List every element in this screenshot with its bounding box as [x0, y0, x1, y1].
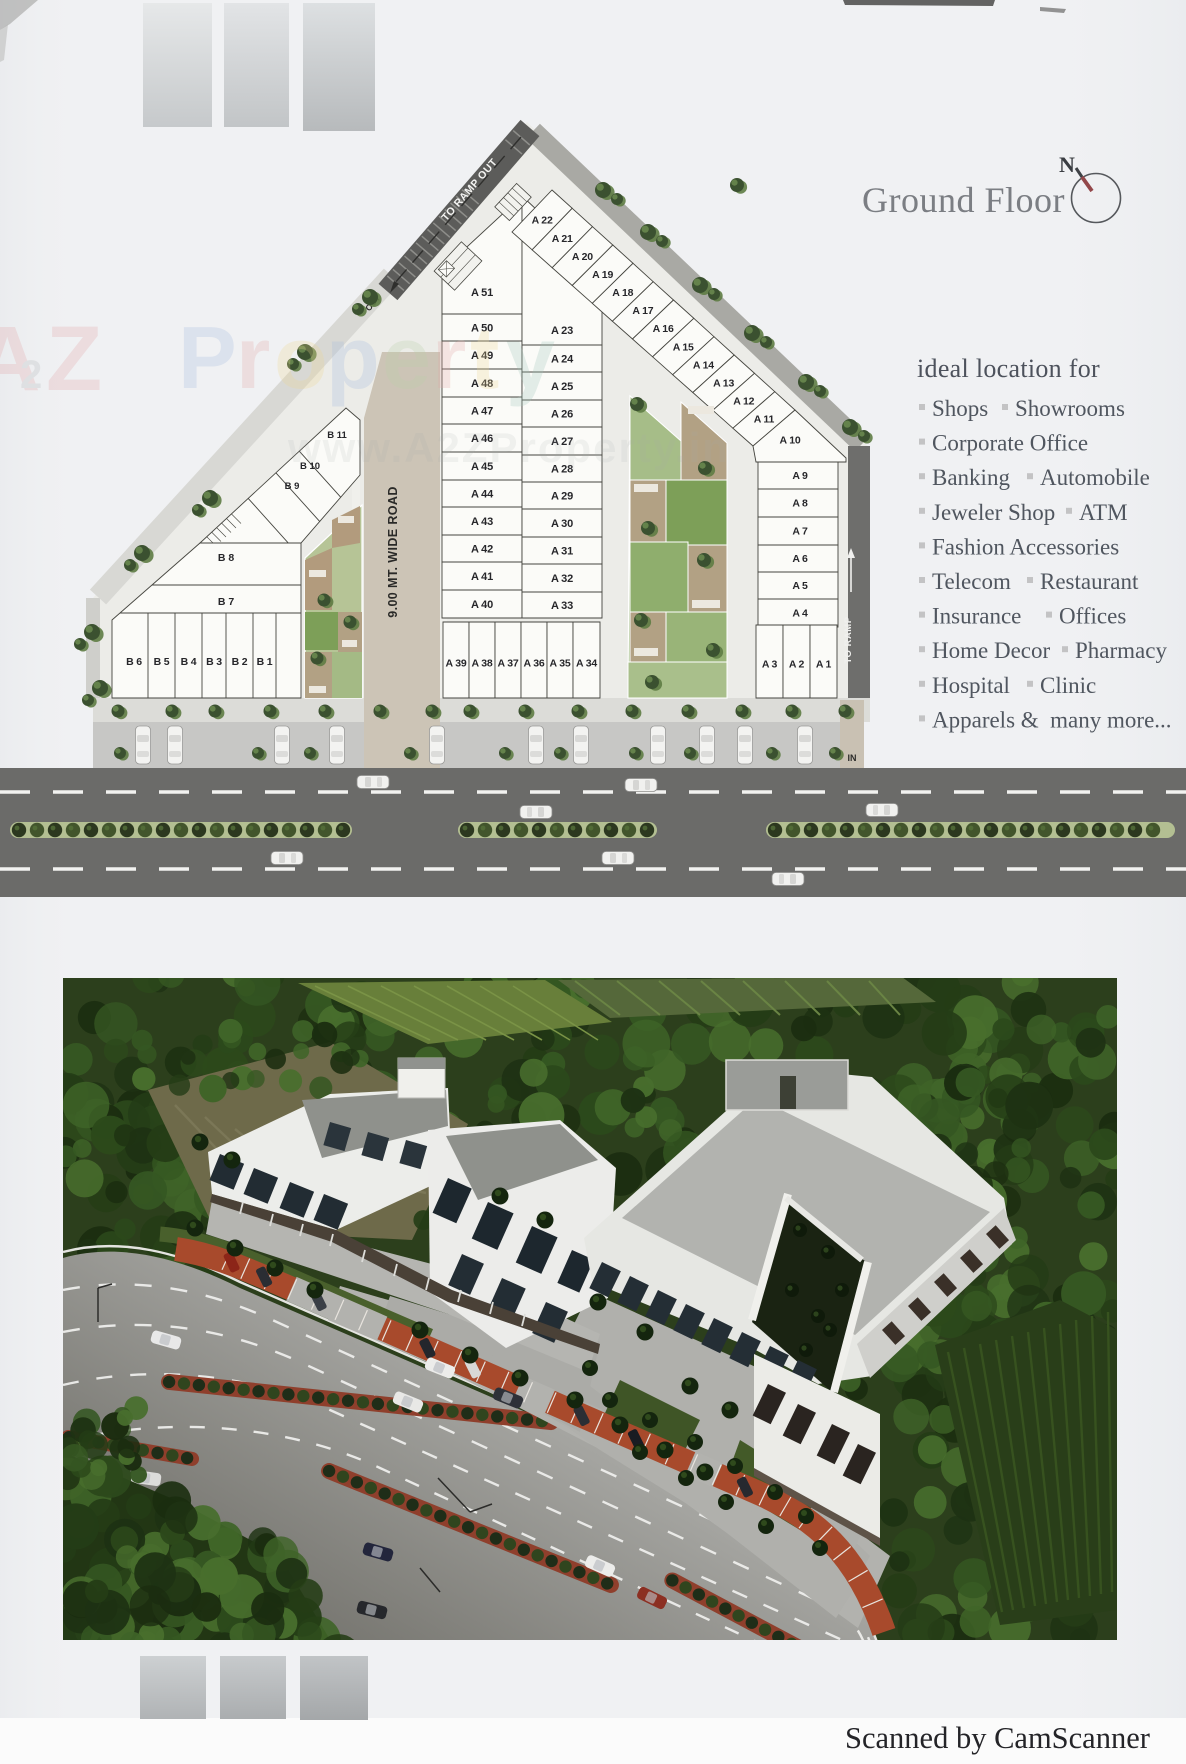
svg-text:B 8: B 8 [218, 552, 235, 564]
svg-text:A 37: A 37 [498, 658, 519, 670]
svg-text:r: r [432, 308, 466, 407]
svg-text:y: y [506, 308, 555, 407]
svg-text:A 34: A 34 [576, 658, 597, 670]
svg-text:r: r [236, 308, 270, 407]
svg-text:A 29: A 29 [551, 490, 573, 502]
svg-text:Restaurant: Restaurant [1040, 569, 1139, 594]
svg-text:Banking: Banking [932, 465, 1010, 490]
svg-text:A 31: A 31 [551, 545, 573, 557]
svg-text:A 3: A 3 [762, 659, 778, 671]
svg-text:A 10: A 10 [780, 435, 801, 447]
svg-text:B 9: B 9 [285, 481, 300, 492]
svg-text:TO RAMP: TO RAMP [843, 616, 854, 663]
svg-text:ideal location for: ideal location for [917, 354, 1100, 383]
svg-text:B 5: B 5 [154, 656, 170, 668]
svg-text:B 1: B 1 [257, 656, 273, 668]
svg-text:www.A2ZProperty.in: www.A2ZProperty.in [287, 424, 730, 471]
svg-text:e: e [382, 308, 431, 407]
svg-text:Jeweler Shop: Jeweler Shop [932, 500, 1055, 525]
svg-text:A 47: A 47 [471, 405, 493, 417]
svg-text:A 4: A 4 [792, 608, 808, 620]
svg-text:Shops: Shops [932, 396, 988, 421]
svg-text:A 26: A 26 [551, 408, 573, 420]
svg-text:A 8: A 8 [792, 498, 808, 510]
svg-text:A 43: A 43 [471, 516, 493, 528]
svg-text:A 21: A 21 [552, 233, 573, 245]
svg-text:Scanned by CamScanner: Scanned by CamScanner [845, 1721, 1150, 1755]
svg-text:Showrooms: Showrooms [1015, 396, 1125, 421]
svg-text:A 51: A 51 [471, 287, 493, 299]
svg-text:A 7: A 7 [792, 526, 808, 538]
svg-text:A 11: A 11 [754, 414, 775, 426]
svg-text:IN: IN [848, 753, 857, 763]
svg-text:Automobile: Automobile [1040, 465, 1150, 490]
svg-text:2: 2 [20, 353, 42, 397]
svg-text:A 39: A 39 [446, 658, 467, 670]
svg-text:A 16: A 16 [653, 323, 674, 335]
svg-text:N: N [1059, 152, 1075, 177]
svg-text:A 1: A 1 [816, 659, 832, 671]
svg-text:Ground Floor: Ground Floor [862, 180, 1065, 220]
svg-text:Corporate Office: Corporate Office [932, 431, 1088, 456]
svg-text:t: t [470, 308, 499, 407]
svg-text:Clinic: Clinic [1040, 673, 1096, 698]
svg-text:A 41: A 41 [471, 571, 493, 583]
svg-text:B 2: B 2 [232, 656, 248, 668]
svg-text:Apparels & many more...: Apparels & many more... [932, 707, 1172, 732]
svg-text:A 17: A 17 [632, 305, 653, 317]
svg-text:A 18: A 18 [612, 287, 633, 299]
svg-text:p: p [326, 308, 380, 407]
svg-text:A 38: A 38 [472, 658, 493, 670]
svg-text:o: o [274, 308, 328, 407]
svg-text:Fashion Accessories: Fashion Accessories [932, 534, 1119, 559]
svg-text:A 36: A 36 [524, 658, 545, 670]
svg-text:A 2: A 2 [789, 659, 805, 671]
svg-text:A 19: A 19 [592, 269, 613, 281]
svg-text:Hospital: Hospital [932, 673, 1010, 698]
svg-text:Home Decor: Home Decor [932, 638, 1050, 663]
svg-text:B 6: B 6 [126, 656, 142, 668]
svg-text:B 7: B 7 [218, 596, 235, 608]
svg-text:ATM: ATM [1079, 500, 1128, 525]
svg-text:A 22: A 22 [532, 215, 553, 227]
svg-text:A 12: A 12 [733, 396, 754, 408]
svg-text:A 13: A 13 [713, 378, 734, 390]
svg-text:A 35: A 35 [550, 658, 571, 670]
svg-text:A 6: A 6 [792, 553, 808, 565]
svg-text:A 9: A 9 [792, 470, 808, 482]
svg-text:Pharmacy: Pharmacy [1075, 638, 1167, 663]
svg-text:A 44: A 44 [471, 488, 494, 500]
svg-text:Telecom: Telecom [932, 569, 1011, 594]
svg-text:9.00 MT. WIDE ROAD: 9.00 MT. WIDE ROAD [386, 486, 400, 618]
svg-text:Z: Z [46, 308, 102, 410]
svg-text:P: P [178, 308, 237, 407]
svg-text:Offices: Offices [1059, 604, 1126, 629]
svg-text:A 30: A 30 [551, 518, 573, 530]
svg-text:B 3: B 3 [206, 656, 222, 668]
svg-text:Insurance: Insurance [932, 604, 1021, 629]
svg-text:A 32: A 32 [551, 573, 573, 585]
svg-text:A 20: A 20 [572, 251, 593, 263]
svg-text:A 40: A 40 [471, 599, 493, 611]
svg-text:A 33: A 33 [551, 600, 573, 612]
svg-text:A 14: A 14 [693, 359, 714, 371]
svg-text:A 42: A 42 [471, 543, 493, 555]
svg-text:A 15: A 15 [673, 341, 694, 353]
svg-text:B 4: B 4 [181, 656, 197, 668]
svg-text:A 5: A 5 [792, 580, 808, 592]
